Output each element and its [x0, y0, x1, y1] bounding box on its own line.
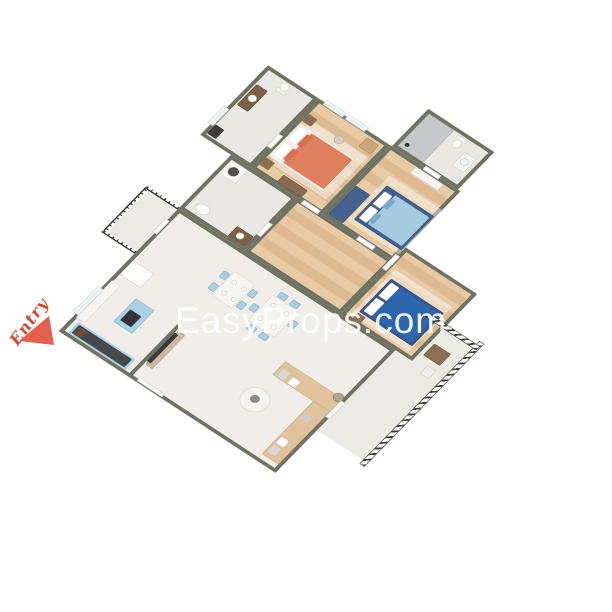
floor-plan-screenshot: EasyProps.com Entry: [0, 0, 612, 612]
entry-arrow-triangle: [19, 316, 54, 345]
entry-arrow-icon: [18, 314, 58, 350]
floor-plan-3d-scene: [12, 24, 607, 519]
watermark-text: EasyProps.com: [175, 300, 447, 342]
